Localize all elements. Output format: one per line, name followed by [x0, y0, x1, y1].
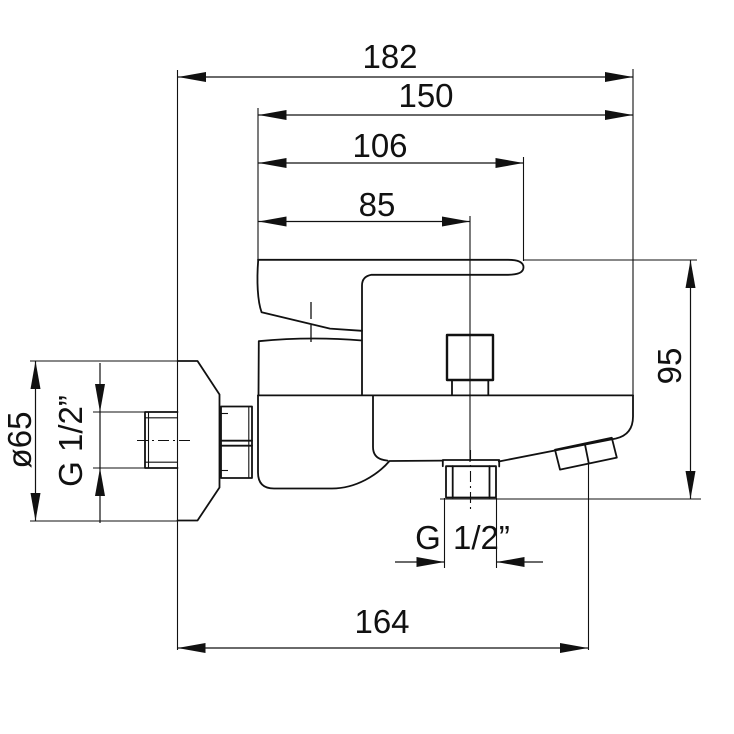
arrowhead	[31, 361, 41, 389]
arrowhead	[259, 158, 287, 168]
handle-lever-underside	[257, 260, 362, 331]
dimension-95: 95	[651, 260, 696, 499]
dim-label-diameter: ø65	[1, 412, 38, 469]
dim-label-106: 106	[352, 127, 407, 164]
arrowhead	[686, 260, 696, 288]
dim-label-150: 150	[398, 77, 453, 114]
angled-outlet	[555, 438, 617, 470]
dim-label-thread-bottom-size: 1/2”	[453, 519, 510, 556]
hex-nut	[221, 407, 252, 479]
dimension-diameter-65: ø65	[1, 361, 41, 521]
dimension-thread-bottom: G 1/2”	[395, 519, 543, 567]
faucet-outline	[145, 260, 633, 521]
centerlines	[137, 302, 471, 512]
body-section-line	[373, 395, 388, 460]
dim-label-85: 85	[359, 186, 396, 223]
cartridge-cover	[259, 339, 363, 395]
dim-label-thread-bottom-g: G	[415, 519, 441, 556]
arrowhead	[496, 158, 524, 168]
dimension-150: 150	[259, 77, 634, 120]
dim-label-95: 95	[651, 348, 688, 385]
arrowhead	[259, 217, 287, 227]
arrowhead	[417, 557, 445, 567]
dimension-85: 85	[259, 186, 471, 227]
dimension-106: 106	[259, 127, 524, 168]
arrowhead	[178, 643, 206, 653]
arrowhead	[442, 217, 470, 227]
arrowhead	[95, 468, 105, 496]
dim-label-164: 164	[354, 603, 409, 640]
body-lower-left	[258, 395, 443, 488]
arrowhead	[560, 643, 588, 653]
body-lower-right	[499, 395, 633, 461]
arrowhead	[686, 471, 696, 499]
dim-label-thread-left: G 1/2”	[52, 395, 89, 487]
arrowhead	[178, 72, 206, 82]
handle-lever-plate	[258, 260, 524, 340]
arrowhead	[605, 72, 633, 82]
arrowhead	[31, 493, 41, 521]
dimension-164: 164	[178, 603, 589, 653]
arrowhead	[497, 557, 525, 567]
arrowhead	[259, 110, 287, 120]
bath-mixer-dimension-drawing: 182 150 106 85 95 164 ø65	[0, 0, 734, 734]
arrowhead	[95, 384, 105, 412]
dim-label-182: 182	[362, 38, 417, 75]
dimension-thread-left: G 1/2”	[52, 363, 105, 523]
arrowhead	[605, 110, 633, 120]
dimension-182: 182	[178, 38, 633, 82]
technical-drawing-page: 182 150 106 85 95 164 ø65	[0, 0, 734, 734]
